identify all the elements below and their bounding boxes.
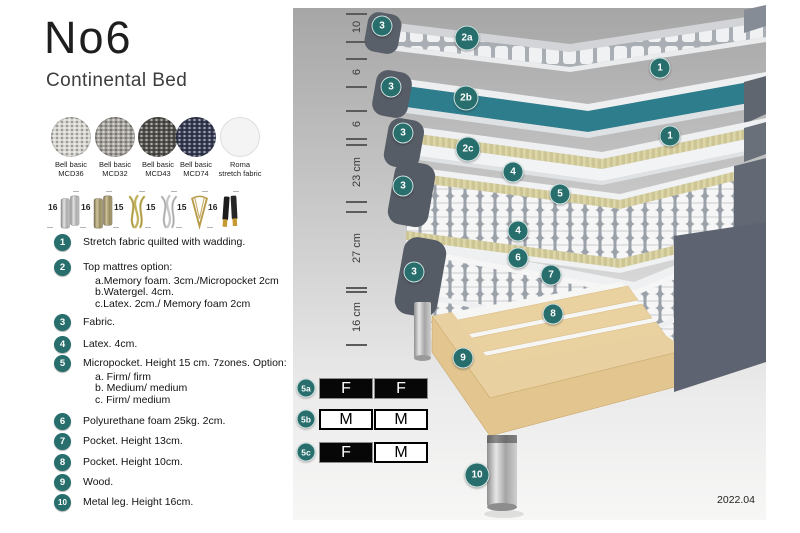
layer-badge: 1	[660, 126, 681, 147]
firmness-cell: M	[374, 409, 428, 430]
dimension-label: 23 cm	[351, 157, 363, 187]
firmness-cell: M	[374, 442, 428, 463]
layer-badge: 5	[550, 184, 571, 205]
layer-badge: 8	[543, 304, 564, 325]
dimension-tick	[346, 41, 367, 43]
version-label: 2022.04	[683, 494, 755, 506]
dimension-tick	[346, 291, 367, 293]
layer-badge: 9	[453, 348, 474, 369]
layer-badge: 1	[650, 58, 671, 79]
dimension-tick	[346, 13, 367, 15]
layer-badge: 3	[393, 123, 414, 144]
layer-badge: 3	[372, 16, 393, 37]
firmness-table-row: FM	[319, 442, 429, 463]
upholstered-side-panel	[674, 222, 766, 392]
layer-2b-watergel	[370, 68, 766, 138]
dimension-label: 6	[351, 69, 363, 75]
firmness-cell: F	[374, 378, 428, 399]
firmness-option-badge: 5b	[297, 410, 316, 429]
dimension-tick	[346, 201, 367, 203]
dimension-tick	[346, 211, 367, 213]
dimension-label: 6	[351, 121, 363, 127]
product-infographic: No6 Continental Bed Bell basicMCD36Bell …	[0, 0, 800, 533]
layer-badge: 4	[503, 162, 524, 183]
dimension-tick	[346, 138, 367, 140]
dimension-tick	[346, 344, 367, 346]
layer-badge: 3	[381, 77, 402, 98]
layer-badge: 10	[465, 463, 490, 488]
dimension-label: 10	[351, 21, 363, 33]
layer-badge: 6	[508, 248, 529, 269]
dimension-tick	[346, 287, 367, 289]
dimension-tick	[346, 144, 367, 146]
dimension-label: 27 cm	[351, 233, 363, 263]
layer-badge: 2a	[455, 26, 480, 51]
layer-badge: 3	[404, 262, 425, 283]
layer-badge: 2b	[454, 86, 479, 111]
layer-badge: 7	[541, 265, 562, 286]
layer-2a-micropocket	[363, 5, 766, 72]
dimension-tick	[346, 58, 367, 60]
firmness-table-row: FF	[319, 378, 429, 399]
firmness-option-badge: 5c	[297, 443, 316, 462]
firmness-table-row: MM	[319, 409, 429, 430]
dimension-tick	[346, 110, 367, 112]
layer-badge: 2c	[456, 137, 481, 162]
layer-badge: 4	[508, 221, 529, 242]
firmness-option-badge: 5a	[297, 379, 316, 398]
firmness-cell: F	[319, 442, 373, 463]
firmness-cell: M	[319, 409, 373, 430]
dimension-label: 16 cm	[351, 302, 363, 332]
firmness-cell: F	[319, 378, 373, 399]
layer-badge: 3	[393, 176, 414, 197]
dimension-tick	[346, 86, 367, 88]
